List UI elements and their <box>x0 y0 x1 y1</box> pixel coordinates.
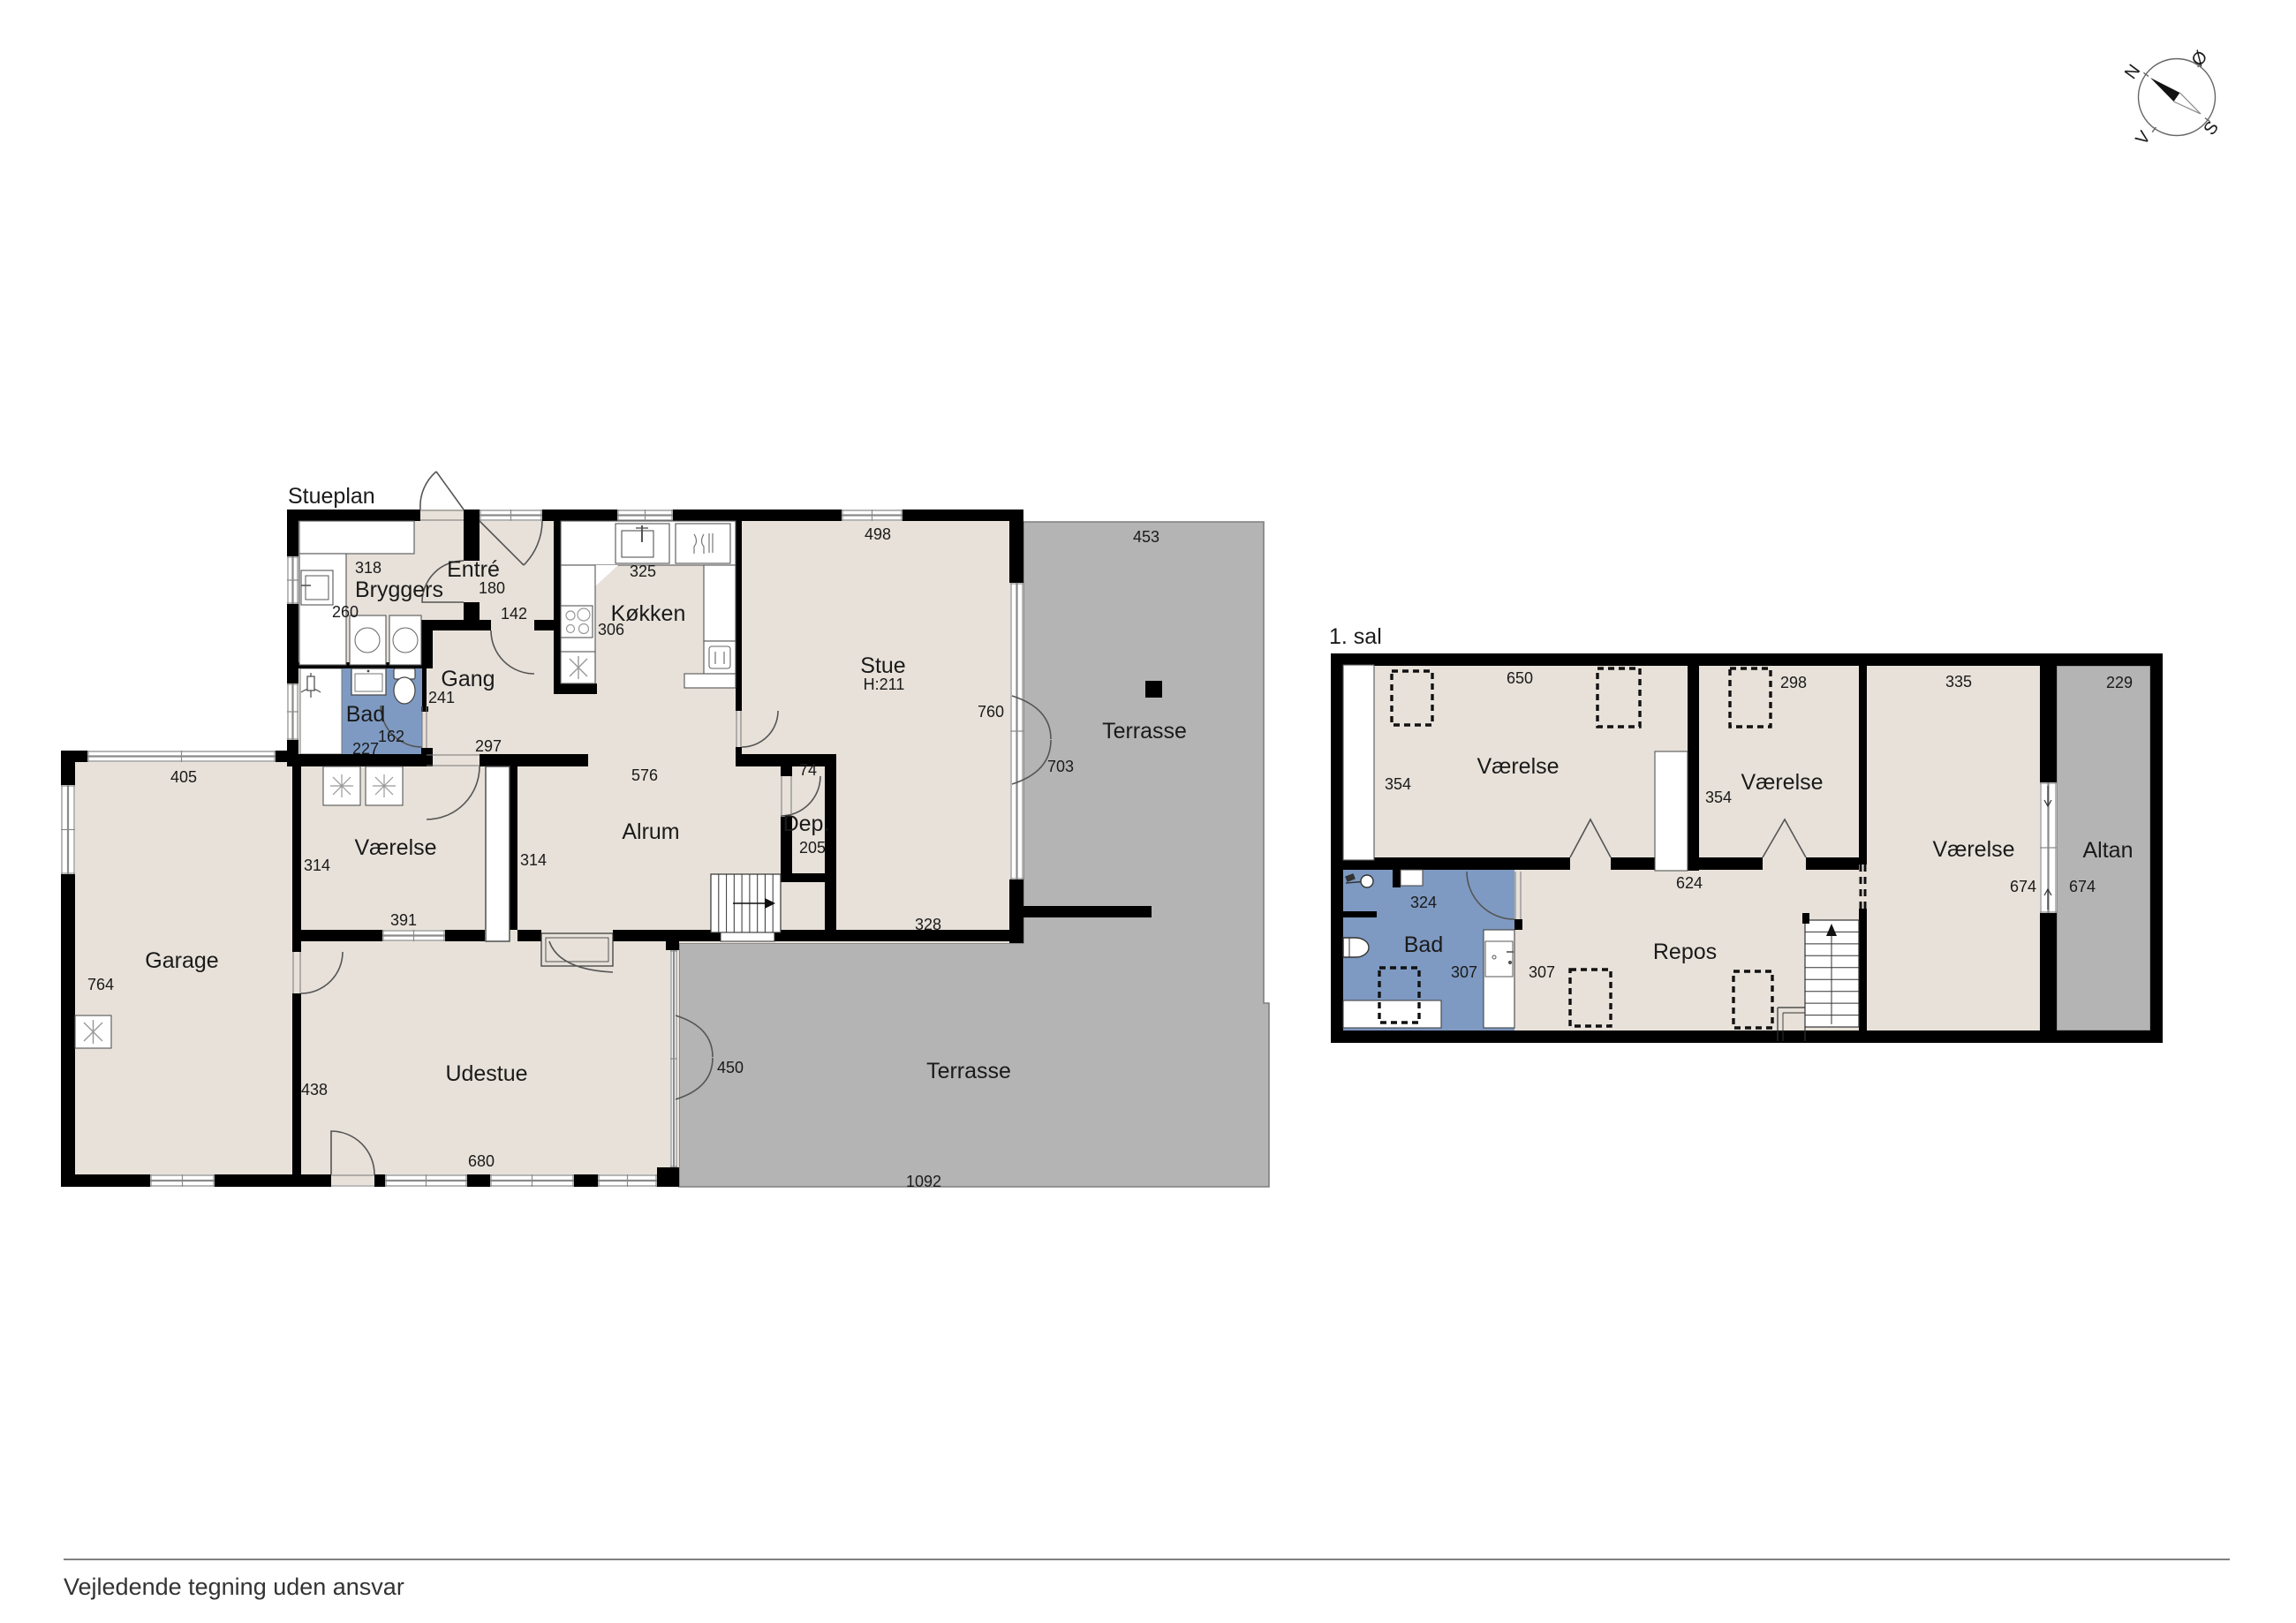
svg-text:229: 229 <box>2106 674 2133 691</box>
svg-text:162: 162 <box>378 728 404 745</box>
svg-text:498: 498 <box>865 525 891 543</box>
svg-text:Bad: Bad <box>1404 932 1443 957</box>
svg-text:Alrum: Alrum <box>622 819 679 844</box>
svg-text:Altan: Altan <box>2083 838 2134 863</box>
svg-text:Værelse: Værelse <box>1932 837 2014 862</box>
svg-text:650: 650 <box>1507 669 1533 687</box>
svg-text:576: 576 <box>631 766 658 784</box>
svg-text:335: 335 <box>1945 673 1972 691</box>
svg-text:674: 674 <box>2010 878 2036 895</box>
svg-text:Stue: Stue <box>860 653 905 678</box>
svg-text:Værelse: Værelse <box>354 835 436 860</box>
svg-text:764: 764 <box>87 976 114 993</box>
svg-text:405: 405 <box>170 768 197 786</box>
svg-text:Vejledende tegning uden ansvar: Vejledende tegning uden ansvar <box>64 1574 404 1600</box>
svg-text:260: 260 <box>332 603 359 621</box>
svg-text:674: 674 <box>2069 878 2096 895</box>
svg-text:298: 298 <box>1780 674 1807 691</box>
svg-text:324: 324 <box>1410 894 1437 911</box>
svg-text:307: 307 <box>1451 963 1477 981</box>
svg-text:318: 318 <box>355 559 381 577</box>
svg-text:328: 328 <box>915 916 941 933</box>
svg-text:Terrasse: Terrasse <box>926 1059 1011 1083</box>
svg-text:354: 354 <box>1385 775 1411 793</box>
svg-text:Entré: Entré <box>447 557 500 582</box>
svg-text:307: 307 <box>1529 963 1555 981</box>
svg-text:H:211: H:211 <box>864 676 905 693</box>
svg-text:297: 297 <box>475 737 502 755</box>
svg-text:Stueplan: Stueplan <box>288 484 375 509</box>
svg-text:Garage: Garage <box>145 948 218 973</box>
svg-text:314: 314 <box>520 851 547 869</box>
svg-text:450: 450 <box>717 1059 744 1076</box>
svg-text:227: 227 <box>352 740 379 758</box>
svg-text:142: 142 <box>501 605 527 623</box>
svg-text:624: 624 <box>1676 874 1703 892</box>
svg-text:180: 180 <box>479 579 505 597</box>
svg-text:325: 325 <box>630 562 656 580</box>
svg-text:680: 680 <box>468 1152 495 1170</box>
svg-text:438: 438 <box>301 1081 328 1098</box>
svg-text:354: 354 <box>1705 789 1732 806</box>
svg-text:Værelse: Værelse <box>1477 754 1559 779</box>
svg-text:Udestue: Udestue <box>445 1061 527 1086</box>
svg-text:205: 205 <box>799 839 826 857</box>
svg-text:1. sal: 1. sal <box>1329 624 1382 649</box>
svg-text:703: 703 <box>1047 758 1074 775</box>
svg-text:Dep.: Dep. <box>783 811 830 836</box>
svg-text:Terrasse: Terrasse <box>1102 719 1187 744</box>
svg-text:314: 314 <box>304 857 330 874</box>
svg-text:241: 241 <box>428 689 455 706</box>
svg-text:Værelse: Værelse <box>1741 770 1823 795</box>
svg-text:453: 453 <box>1133 528 1159 546</box>
svg-text:1092: 1092 <box>906 1173 941 1190</box>
svg-text:Bad: Bad <box>346 702 385 727</box>
svg-text:306: 306 <box>598 621 624 638</box>
svg-text:Gang: Gang <box>441 667 495 691</box>
svg-text:391: 391 <box>390 911 417 929</box>
svg-text:74: 74 <box>799 761 817 779</box>
svg-text:760: 760 <box>978 703 1004 721</box>
svg-text:Bryggers: Bryggers <box>355 577 443 602</box>
svg-text:Repos: Repos <box>1653 940 1717 964</box>
